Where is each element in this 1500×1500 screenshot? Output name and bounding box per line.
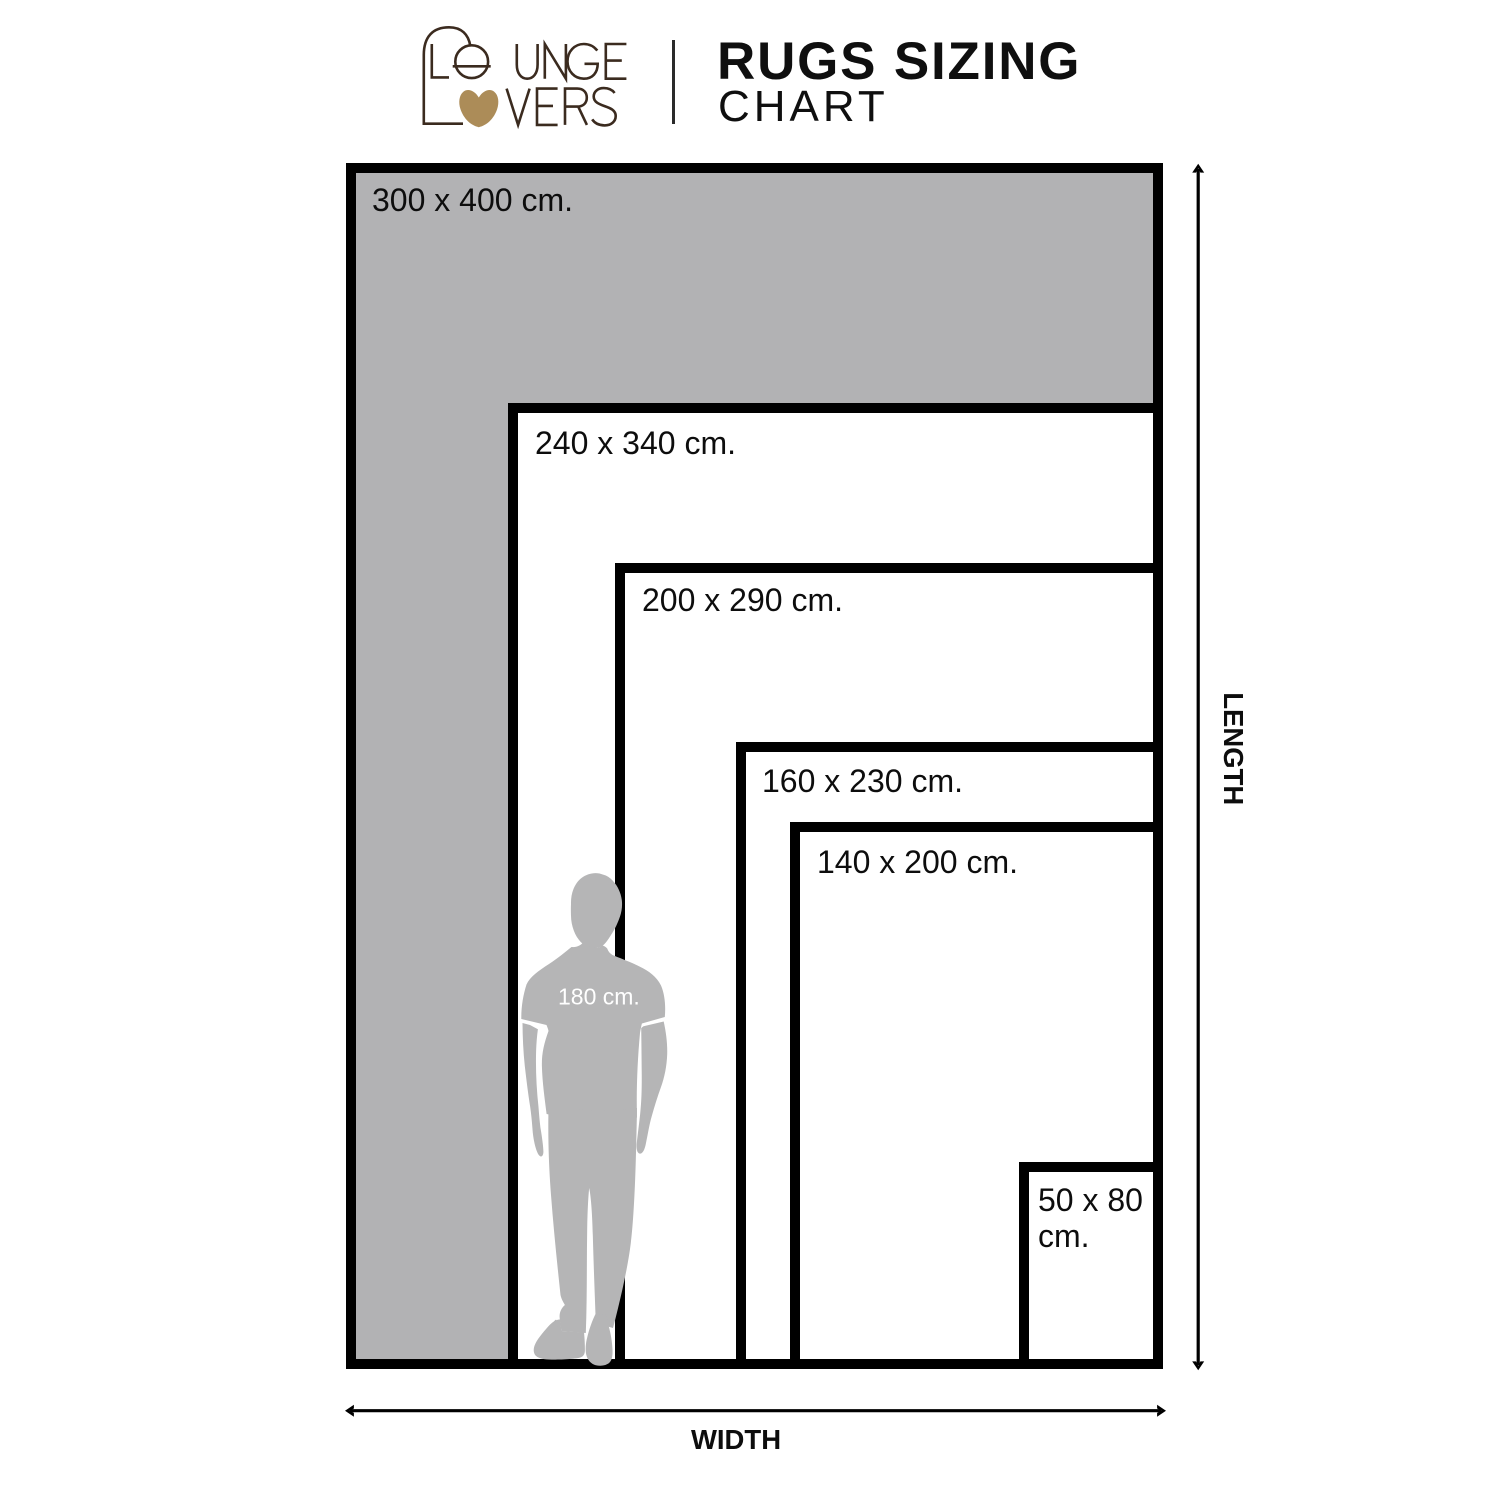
svg-text:180 cm.: 180 cm.	[558, 984, 640, 1010]
